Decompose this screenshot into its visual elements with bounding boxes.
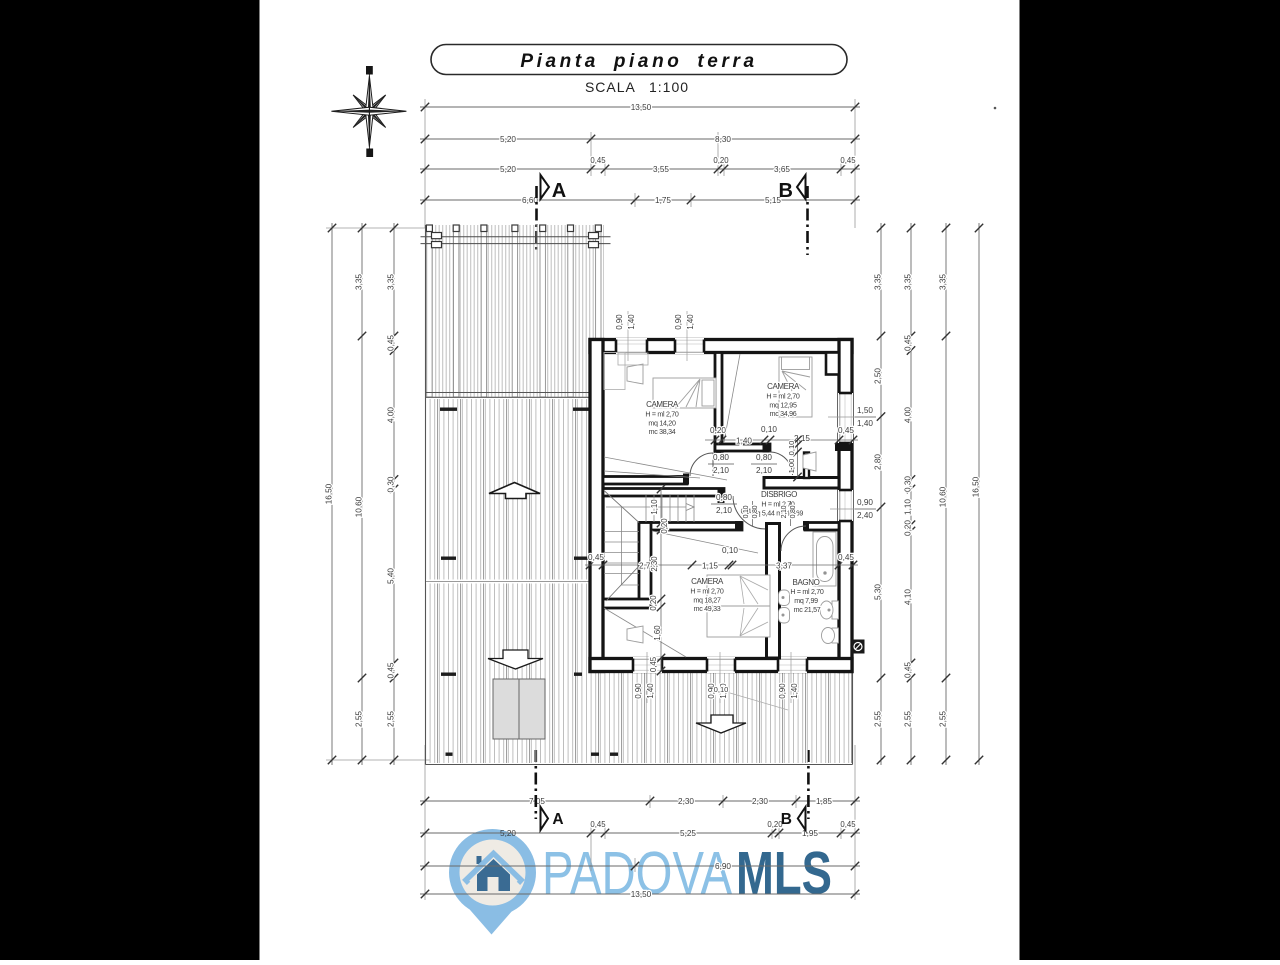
svg-text:2,55: 2,55 xyxy=(387,711,396,727)
svg-text:2,80: 2,80 xyxy=(874,454,883,470)
svg-text:3,35: 3,35 xyxy=(387,274,396,290)
svg-text:13,50: 13,50 xyxy=(631,890,652,899)
svg-text:4,10: 4,10 xyxy=(904,589,913,605)
svg-text:2,10: 2,10 xyxy=(716,506,732,515)
svg-text:1,95: 1,95 xyxy=(802,829,818,838)
svg-text:CAMERA: CAMERA xyxy=(767,382,800,391)
svg-text:1,00: 1,00 xyxy=(787,459,796,474)
svg-text:0,20: 0,20 xyxy=(660,518,669,534)
svg-text:2,10: 2,10 xyxy=(780,505,788,518)
svg-text:H = ml 2,70: H = ml 2,70 xyxy=(766,393,800,401)
svg-text:MLS: MLS xyxy=(736,840,832,907)
svg-text:0,10: 0,10 xyxy=(714,685,729,694)
svg-text:2,10: 2,10 xyxy=(713,466,729,475)
svg-text:2,10: 2,10 xyxy=(756,466,772,475)
svg-text:mc 38,34: mc 38,34 xyxy=(649,428,676,436)
svg-text:2,55: 2,55 xyxy=(939,711,948,727)
svg-text:1,10: 1,10 xyxy=(904,499,913,515)
svg-text:1,10: 1,10 xyxy=(650,499,659,515)
svg-text:BAGNO: BAGNO xyxy=(793,578,820,587)
svg-text:2,50: 2,50 xyxy=(874,368,883,384)
svg-text:3,35: 3,35 xyxy=(939,274,948,290)
svg-text:0,45: 0,45 xyxy=(588,553,604,562)
svg-text:13,50: 13,50 xyxy=(631,103,652,112)
svg-text:1,40: 1,40 xyxy=(857,419,873,428)
svg-text:0,80: 0,80 xyxy=(716,493,732,502)
svg-text:0,20: 0,20 xyxy=(710,426,726,435)
svg-text:0,90: 0,90 xyxy=(615,314,624,330)
svg-text:0,45: 0,45 xyxy=(838,426,854,435)
svg-text:1,40: 1,40 xyxy=(627,314,636,330)
svg-text:mc 34,96: mc 34,96 xyxy=(770,410,797,418)
svg-text:3,37: 3,37 xyxy=(776,562,792,571)
svg-text:0,20: 0,20 xyxy=(649,595,658,611)
svg-text:mc 21,57: mc 21,57 xyxy=(794,606,821,614)
svg-text:16,50: 16,50 xyxy=(325,483,334,504)
svg-text:1,40: 1,40 xyxy=(736,437,752,446)
svg-text:mq 14,20: mq 14,20 xyxy=(648,420,676,428)
svg-text:Pianta piano terra: Pianta piano terra xyxy=(520,51,757,72)
svg-text:1,85: 1,85 xyxy=(816,797,832,806)
svg-text:0,80: 0,80 xyxy=(713,453,729,462)
svg-text:5,20: 5,20 xyxy=(500,829,516,838)
svg-text:2,30: 2,30 xyxy=(752,797,768,806)
svg-text:5,25: 5,25 xyxy=(680,829,696,838)
svg-text:16,50: 16,50 xyxy=(972,476,981,497)
svg-text:0,80: 0,80 xyxy=(789,505,797,518)
svg-text:0,80: 0,80 xyxy=(756,453,772,462)
svg-text:1,75: 1,75 xyxy=(655,196,671,205)
svg-text:3,35: 3,35 xyxy=(904,274,913,290)
svg-text:1,15: 1,15 xyxy=(702,562,718,571)
svg-text:0,45: 0,45 xyxy=(649,656,658,672)
svg-text:6,90: 6,90 xyxy=(715,862,731,871)
svg-text:0,10: 0,10 xyxy=(787,441,796,456)
svg-text:0,90: 0,90 xyxy=(857,498,873,507)
svg-text:0,45: 0,45 xyxy=(590,156,606,165)
svg-text:1,40: 1,40 xyxy=(790,683,799,699)
svg-text:1,40: 1,40 xyxy=(646,683,655,699)
svg-text:mq 7,99: mq 7,99 xyxy=(794,597,818,605)
svg-text:2,55: 2,55 xyxy=(904,711,913,727)
svg-text:H = ml 2,70: H = ml 2,70 xyxy=(690,588,724,596)
svg-text:1,40: 1,40 xyxy=(686,314,695,330)
svg-text:0,45: 0,45 xyxy=(840,156,856,165)
svg-text:0,45: 0,45 xyxy=(904,335,913,351)
svg-text:SCALA 1:100: SCALA 1:100 xyxy=(585,79,689,95)
svg-text:0,30: 0,30 xyxy=(387,476,396,492)
svg-text:0,10: 0,10 xyxy=(742,505,750,518)
svg-text:CAMERA: CAMERA xyxy=(691,577,724,586)
svg-text:4,00: 4,00 xyxy=(387,407,396,423)
svg-text:3,35: 3,35 xyxy=(874,274,883,290)
svg-text:0,45: 0,45 xyxy=(387,662,396,678)
svg-text:3,65: 3,65 xyxy=(774,165,790,174)
svg-text:10,60: 10,60 xyxy=(355,496,364,517)
svg-text:0,90: 0,90 xyxy=(778,683,787,699)
svg-text:10,60: 10,60 xyxy=(939,486,948,507)
svg-text:3,55: 3,55 xyxy=(653,165,669,174)
svg-text:0,90: 0,90 xyxy=(634,683,643,699)
svg-text:2,30: 2,30 xyxy=(650,556,659,572)
svg-text:0,45: 0,45 xyxy=(904,662,913,678)
svg-text:2,55: 2,55 xyxy=(874,711,883,727)
svg-text:0,20: 0,20 xyxy=(713,156,729,165)
svg-text:1,60: 1,60 xyxy=(653,625,662,641)
svg-text:4,00: 4,00 xyxy=(904,407,913,423)
svg-text:CAMERA: CAMERA xyxy=(646,400,679,409)
svg-text:5,20: 5,20 xyxy=(500,135,516,144)
svg-text:0,80: 0,80 xyxy=(751,505,759,518)
svg-text:1,50: 1,50 xyxy=(857,406,873,415)
svg-text:mq 12,95: mq 12,95 xyxy=(769,402,797,410)
svg-text:0,10: 0,10 xyxy=(761,425,777,434)
svg-text:0,20: 0,20 xyxy=(904,520,913,536)
svg-text:0,45: 0,45 xyxy=(590,820,606,829)
svg-text:0,45: 0,45 xyxy=(387,335,396,351)
svg-text:5,20: 5,20 xyxy=(500,165,516,174)
svg-text:A: A xyxy=(552,180,566,202)
svg-text:2,55: 2,55 xyxy=(355,711,364,727)
svg-text:7,05: 7,05 xyxy=(529,797,545,806)
svg-text:0,90: 0,90 xyxy=(674,314,683,330)
svg-text:H = ml 2,70: H = ml 2,70 xyxy=(645,411,679,419)
svg-text:DISBRIGO: DISBRIGO xyxy=(761,490,797,499)
svg-text:2,30: 2,30 xyxy=(678,797,694,806)
svg-text:2,40: 2,40 xyxy=(857,511,873,520)
svg-text:0,10: 0,10 xyxy=(722,546,738,555)
svg-text:3,35: 3,35 xyxy=(355,274,364,290)
svg-text:0,45: 0,45 xyxy=(838,553,854,562)
svg-text:0,45: 0,45 xyxy=(840,820,856,829)
svg-text:B: B xyxy=(781,811,792,828)
svg-text:8,30: 8,30 xyxy=(715,135,731,144)
svg-text:mq 18,27: mq 18,27 xyxy=(693,597,721,605)
svg-text:5,30: 5,30 xyxy=(874,584,883,600)
svg-text:5,40: 5,40 xyxy=(387,568,396,584)
svg-text:0,30: 0,30 xyxy=(904,476,913,492)
svg-text:mc 49,33: mc 49,33 xyxy=(694,605,721,613)
svg-text:B: B xyxy=(779,180,793,202)
svg-text:A: A xyxy=(552,811,563,828)
svg-text:H = ml 2,70: H = ml 2,70 xyxy=(790,588,824,596)
